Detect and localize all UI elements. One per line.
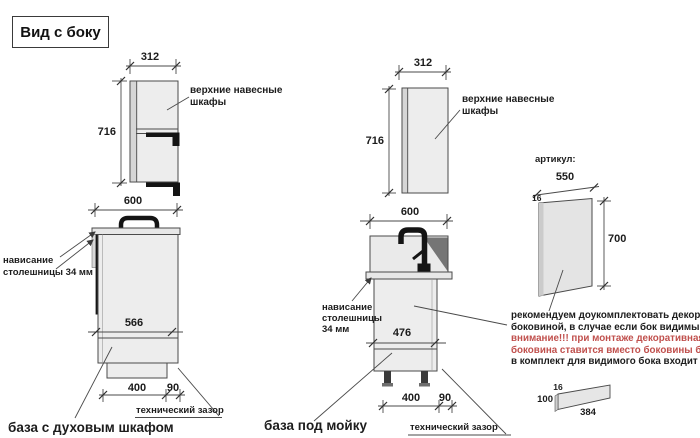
article-heading: артикул: xyxy=(535,155,576,165)
sink-upper-width-dim: 312 xyxy=(398,58,448,70)
plinth-thickness-dim: 16 xyxy=(549,383,567,392)
oven-gap-dim: 90 xyxy=(158,383,188,395)
panel-note-line-2: боковиной, в случае если бок видимый xyxy=(511,323,700,333)
plinth-length-dim: 384 xyxy=(573,408,603,418)
panel-width-dim: 550 xyxy=(540,172,590,184)
oven-overhang-label: нависание столешницы 34 мм xyxy=(3,255,93,278)
plinth-height-dim: 100 xyxy=(531,395,553,405)
drawing-linework xyxy=(0,0,700,438)
adjustable-feet xyxy=(382,371,430,387)
panel-warning-line-2: боковина ставится вместо боковины базы л… xyxy=(511,346,700,356)
sink-bottom-width-dim: 400 xyxy=(386,393,436,405)
oven-base-name: база с духовым шкафом xyxy=(8,421,174,435)
side-view-drawing: Вид с боку 312 716 верхние навесные шкаф… xyxy=(0,0,700,438)
sink-overhang-label: нависание столешницы 34 мм xyxy=(322,302,382,335)
sink-upper-cabinet-shape xyxy=(382,65,460,197)
oven-bottom-width-dim: 400 xyxy=(112,383,162,395)
page-title-text: Вид с боку xyxy=(20,24,101,41)
sink-depth-dim: 476 xyxy=(377,328,427,340)
plinth-recess xyxy=(107,363,167,378)
sink-base-width-dim: 600 xyxy=(385,207,435,219)
oven-upper-height-dim: 716 xyxy=(94,127,116,139)
door-handle-profile-bottom xyxy=(146,183,180,197)
oven-upper-cabinet-label: верхние навесные шкафы xyxy=(190,85,282,108)
oven-handle xyxy=(121,218,157,228)
panel-note-line-3: в комплект для видимого бока входит цоко… xyxy=(511,357,700,367)
sink-gap-label: технический зазор xyxy=(410,423,498,433)
sink-base-name: база под мойку xyxy=(264,419,367,433)
sink-upper-height-dim: 716 xyxy=(362,136,384,148)
panel-note-line-1: рекомендуем доукомплектовать декоративно… xyxy=(511,311,700,321)
oven-base-width-dim: 600 xyxy=(108,196,158,208)
decorative-panel-shape xyxy=(533,184,611,412)
faucet-base xyxy=(418,264,431,272)
panel-height-dim: 700 xyxy=(608,234,626,246)
oven-upper-cabinet-shape xyxy=(112,59,189,196)
sink-upper-cabinet-label: верхние навесные шкафы xyxy=(462,94,554,117)
sink-gap-dim: 90 xyxy=(430,393,460,405)
panel-warning-line-1: внимание!!! при монтаже декоративная xyxy=(511,334,700,344)
oven-depth-dim: 566 xyxy=(109,318,159,330)
countertop xyxy=(366,272,452,279)
page-title: Вид с боку xyxy=(12,16,109,48)
panel-thickness-dim: 16 xyxy=(532,194,541,203)
oven-gap-label: технический зазор xyxy=(136,406,224,416)
oven-upper-width-dim: 312 xyxy=(125,52,175,64)
